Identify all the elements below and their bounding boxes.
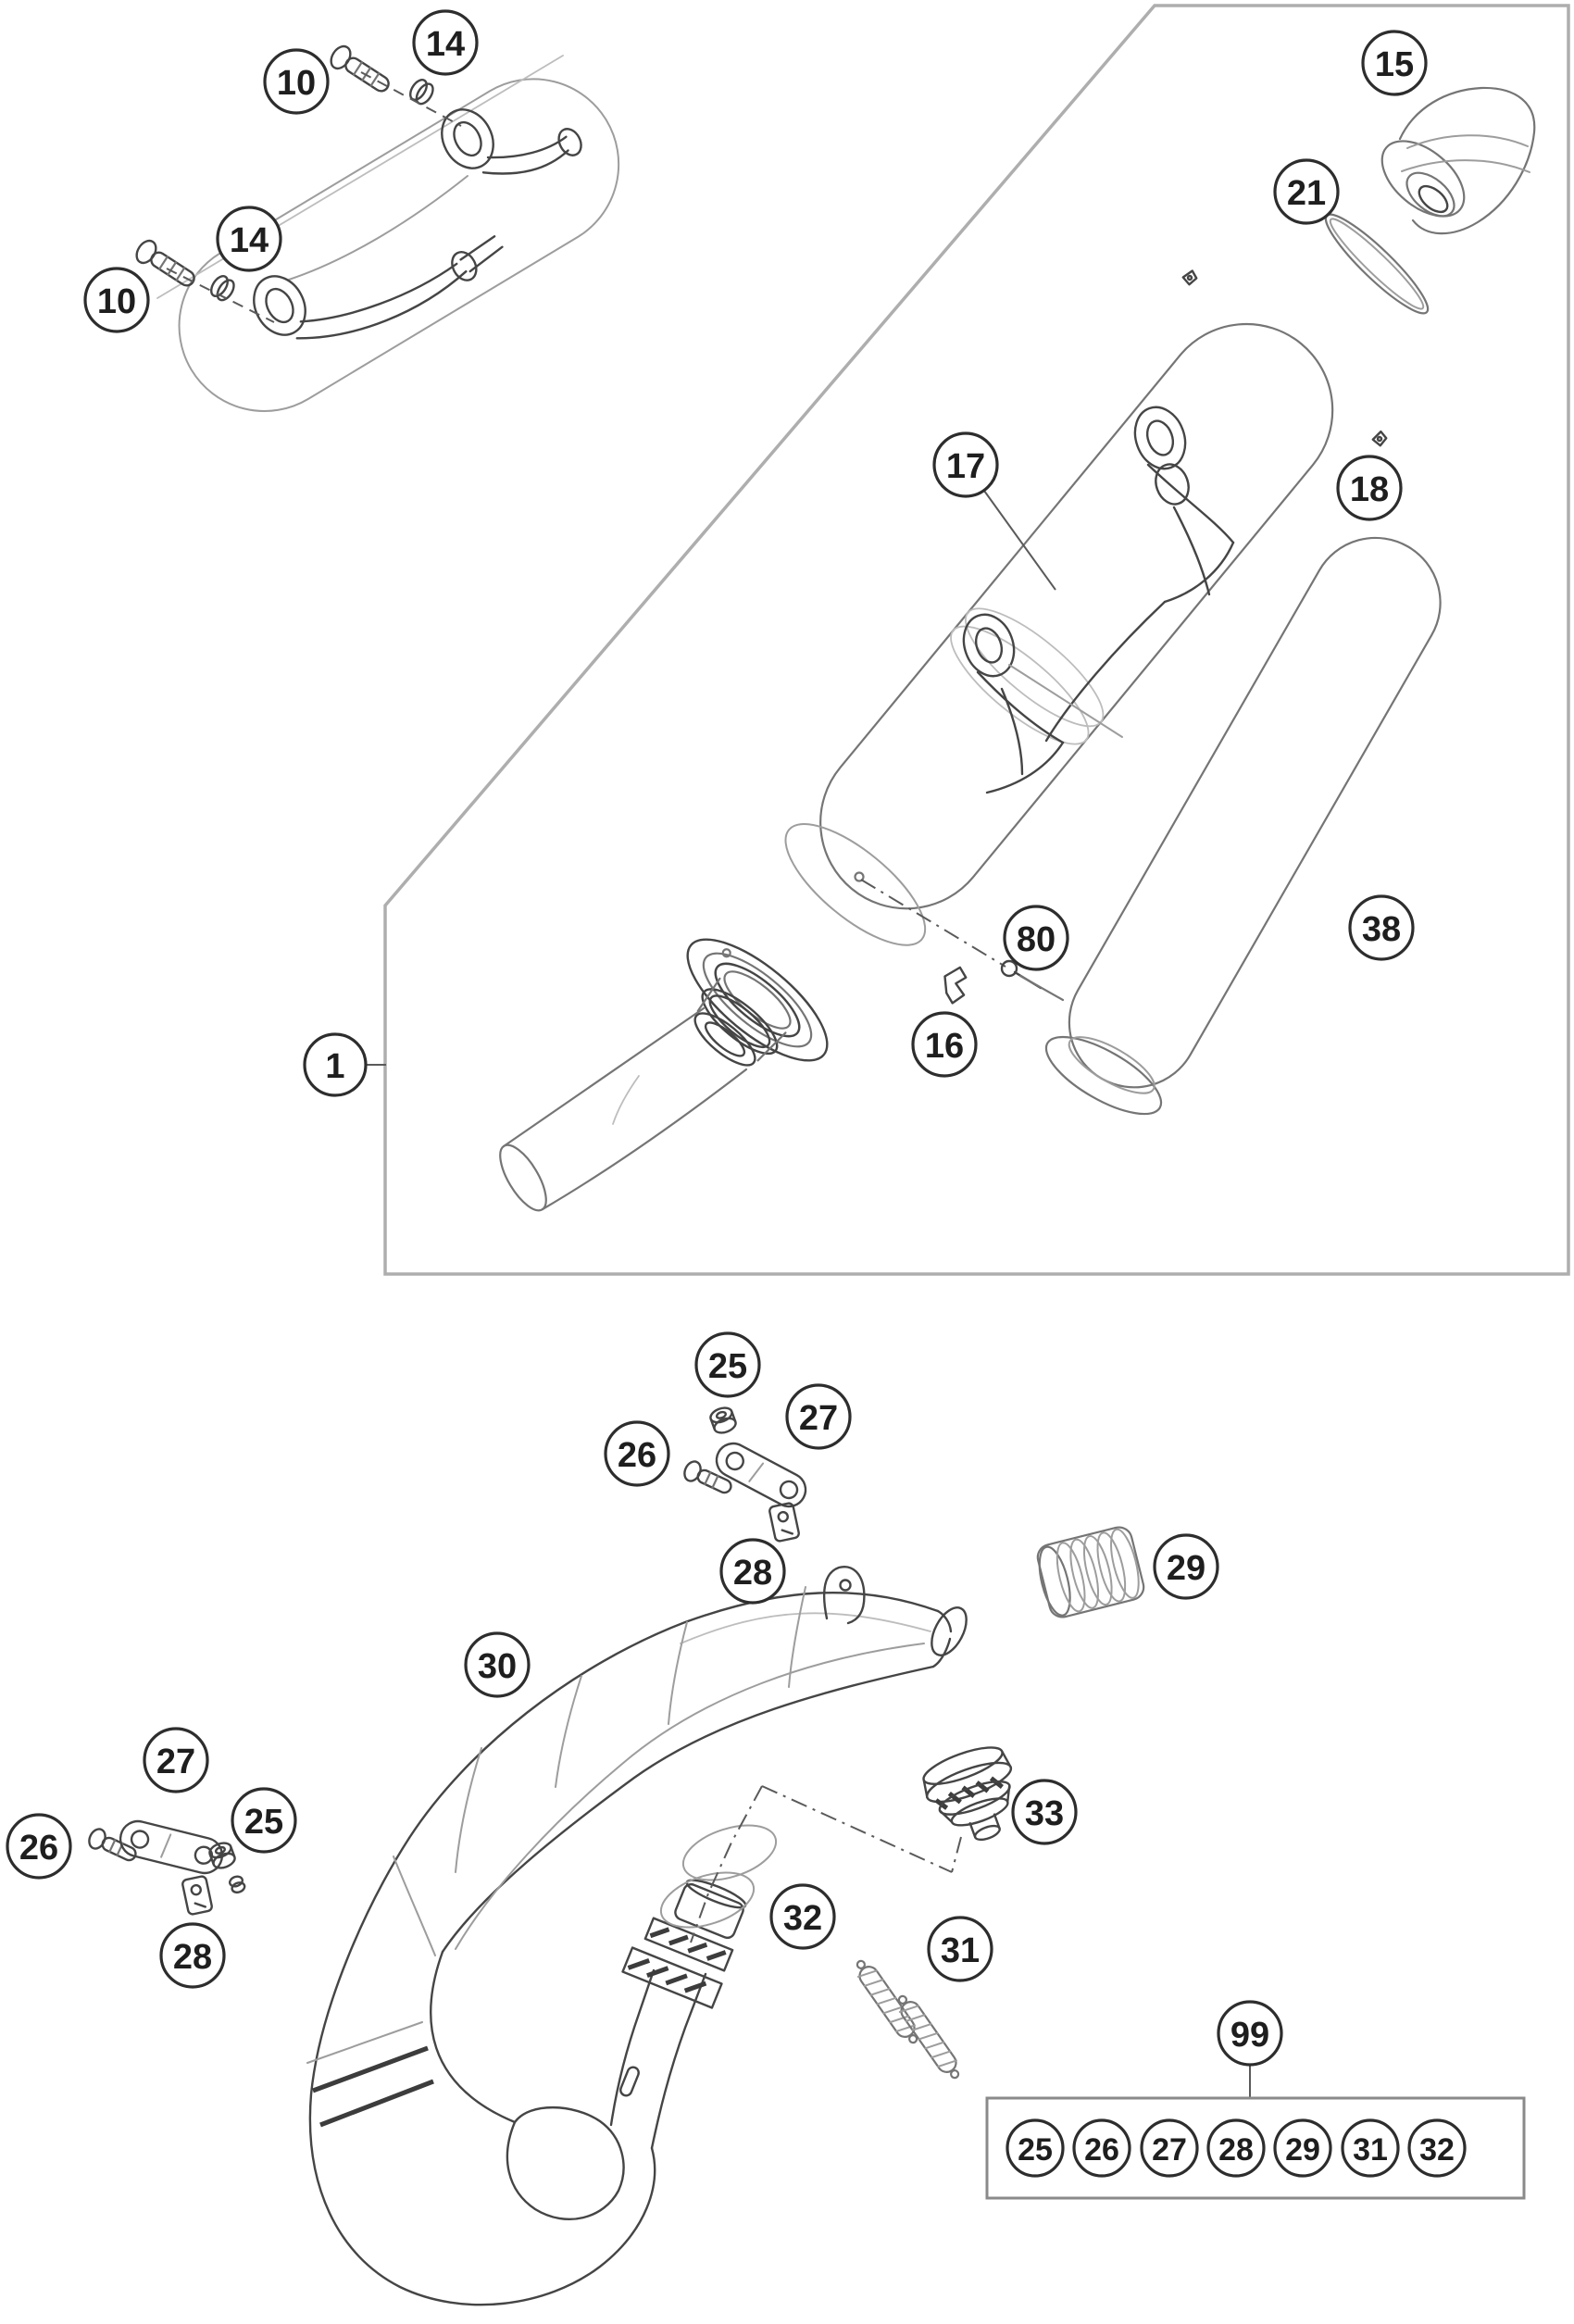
inner-tube-part (1035, 514, 1464, 1129)
callout-1: 1 (305, 1034, 366, 1095)
callout-number: 29 (1167, 1549, 1205, 1588)
chamber-coupling-2 (645, 1918, 732, 1971)
callout-number: 21 (1287, 174, 1326, 213)
link-part-left (117, 1818, 226, 1877)
callout-21: 21 (1275, 160, 1338, 223)
callout-number: 25 (708, 1347, 747, 1386)
washer-lower (208, 273, 238, 303)
callout-number: 32 (1419, 2132, 1455, 2168)
callout-number: 33 (1025, 1794, 1064, 1833)
callout-number: 27 (799, 1399, 838, 1438)
legend-item-layer: 25262728293132 (1007, 2120, 1465, 2176)
callout-30: 30 (466, 1633, 529, 1696)
callout-16: 16 (913, 1013, 976, 1076)
clip-part-left (181, 1876, 212, 1916)
callout-number: 28 (1218, 2132, 1254, 2168)
callout-number: 18 (1350, 470, 1389, 509)
callout-layer: 1014101415211718801638125272628293027252… (7, 11, 1426, 2065)
gasket-rings (655, 1815, 783, 1938)
callout-28: 28 (721, 1540, 784, 1603)
flange-cap-part (917, 1739, 1031, 1853)
callout-25: 25 (232, 1789, 295, 1852)
callout-32: 32 (1409, 2120, 1465, 2176)
callout-14: 14 (218, 207, 281, 270)
callout-number: 27 (156, 1743, 195, 1781)
washer-upper (407, 77, 437, 106)
callout-number: 31 (941, 1931, 980, 1970)
clip-part-top (768, 1503, 799, 1543)
callout-number: 26 (1084, 2132, 1119, 2168)
callout-29: 29 (1155, 1535, 1218, 1598)
callout-14: 14 (414, 11, 477, 74)
callout-number: 29 (1285, 2132, 1320, 2168)
mount-hardware-left (86, 1818, 246, 1915)
tiny-screw-b (1372, 431, 1387, 446)
callout-32: 32 (771, 1885, 834, 1948)
callout-15: 15 (1363, 31, 1426, 94)
callout-27: 27 (787, 1385, 850, 1448)
callout-38: 38 (1350, 896, 1413, 959)
end-cap-part (1368, 88, 1534, 233)
callout-number: 26 (19, 1829, 58, 1868)
callout-25: 25 (1007, 2120, 1063, 2176)
link-part-top (711, 1438, 812, 1513)
callout-number: 1 (325, 1047, 344, 1086)
callout-number: 80 (1017, 920, 1056, 959)
callout-number: 31 (1353, 2132, 1388, 2168)
callout-number: 14 (230, 221, 269, 260)
callout-number: 38 (1362, 910, 1401, 949)
nut-part-left (207, 1841, 236, 1871)
rubber-sleeve-part (1033, 1525, 1146, 1620)
callout-number: 25 (1018, 2132, 1053, 2168)
callout-31: 31 (929, 1918, 992, 1980)
header-pipe-part (492, 1008, 746, 1218)
callout-number: 30 (478, 1647, 517, 1686)
callout-number: 17 (946, 447, 985, 486)
callout-number: 15 (1375, 45, 1414, 84)
callout-18: 18 (1338, 456, 1401, 519)
callout-28: 28 (161, 1924, 224, 1987)
body-upper-clamp (1046, 400, 1233, 741)
callout-27: 27 (1142, 2120, 1197, 2176)
callout-number: 28 (733, 1554, 772, 1593)
o-ring-part (1317, 205, 1437, 322)
callout-number: 25 (244, 1803, 283, 1842)
lower-clamp (244, 173, 509, 376)
exhaust-parts-diagram: 1014101415211718801638125272628293027252… (0, 0, 1574, 2324)
callout-number: 14 (426, 25, 465, 64)
callout-number: 26 (618, 1436, 656, 1475)
callout-26: 26 (1074, 2120, 1130, 2176)
silencer-body (768, 289, 1368, 965)
callout-26: 26 (7, 1815, 70, 1878)
clip-part (942, 967, 970, 1004)
callout-number: 28 (173, 1938, 212, 1977)
flange-part (650, 919, 845, 1105)
callout-number: 10 (277, 64, 316, 103)
callout-80: 80 (1005, 906, 1068, 969)
callout-10: 10 (265, 50, 328, 113)
callout-number: 10 (97, 282, 136, 321)
silencer-fragment (132, 43, 650, 443)
expansion-chamber (307, 1567, 973, 2305)
callout-26: 26 (606, 1422, 668, 1485)
callout-33: 33 (1013, 1780, 1076, 1843)
callout-number: 27 (1152, 2132, 1187, 2168)
callout-29: 29 (1275, 2120, 1330, 2176)
callout-number: 16 (925, 1027, 964, 1066)
callout-27: 27 (144, 1729, 207, 1792)
callout-31: 31 (1343, 2120, 1398, 2176)
nut-part-top (708, 1406, 737, 1436)
callout-17: 17 (934, 433, 997, 496)
bolt-part-left (86, 1827, 139, 1866)
tiny-screw-a (1181, 269, 1198, 286)
mount-screw-upper (327, 43, 393, 97)
callout-number: 32 (783, 1899, 822, 1938)
callout-28: 28 (1208, 2120, 1264, 2176)
callout-99: 99 (1218, 2002, 1281, 2065)
callout-number: 99 (1230, 2016, 1269, 2055)
callout-25: 25 (696, 1333, 759, 1396)
diagram-page: 1014101415211718801638125272628293027252… (0, 0, 1574, 2324)
callout-10: 10 (85, 269, 148, 331)
